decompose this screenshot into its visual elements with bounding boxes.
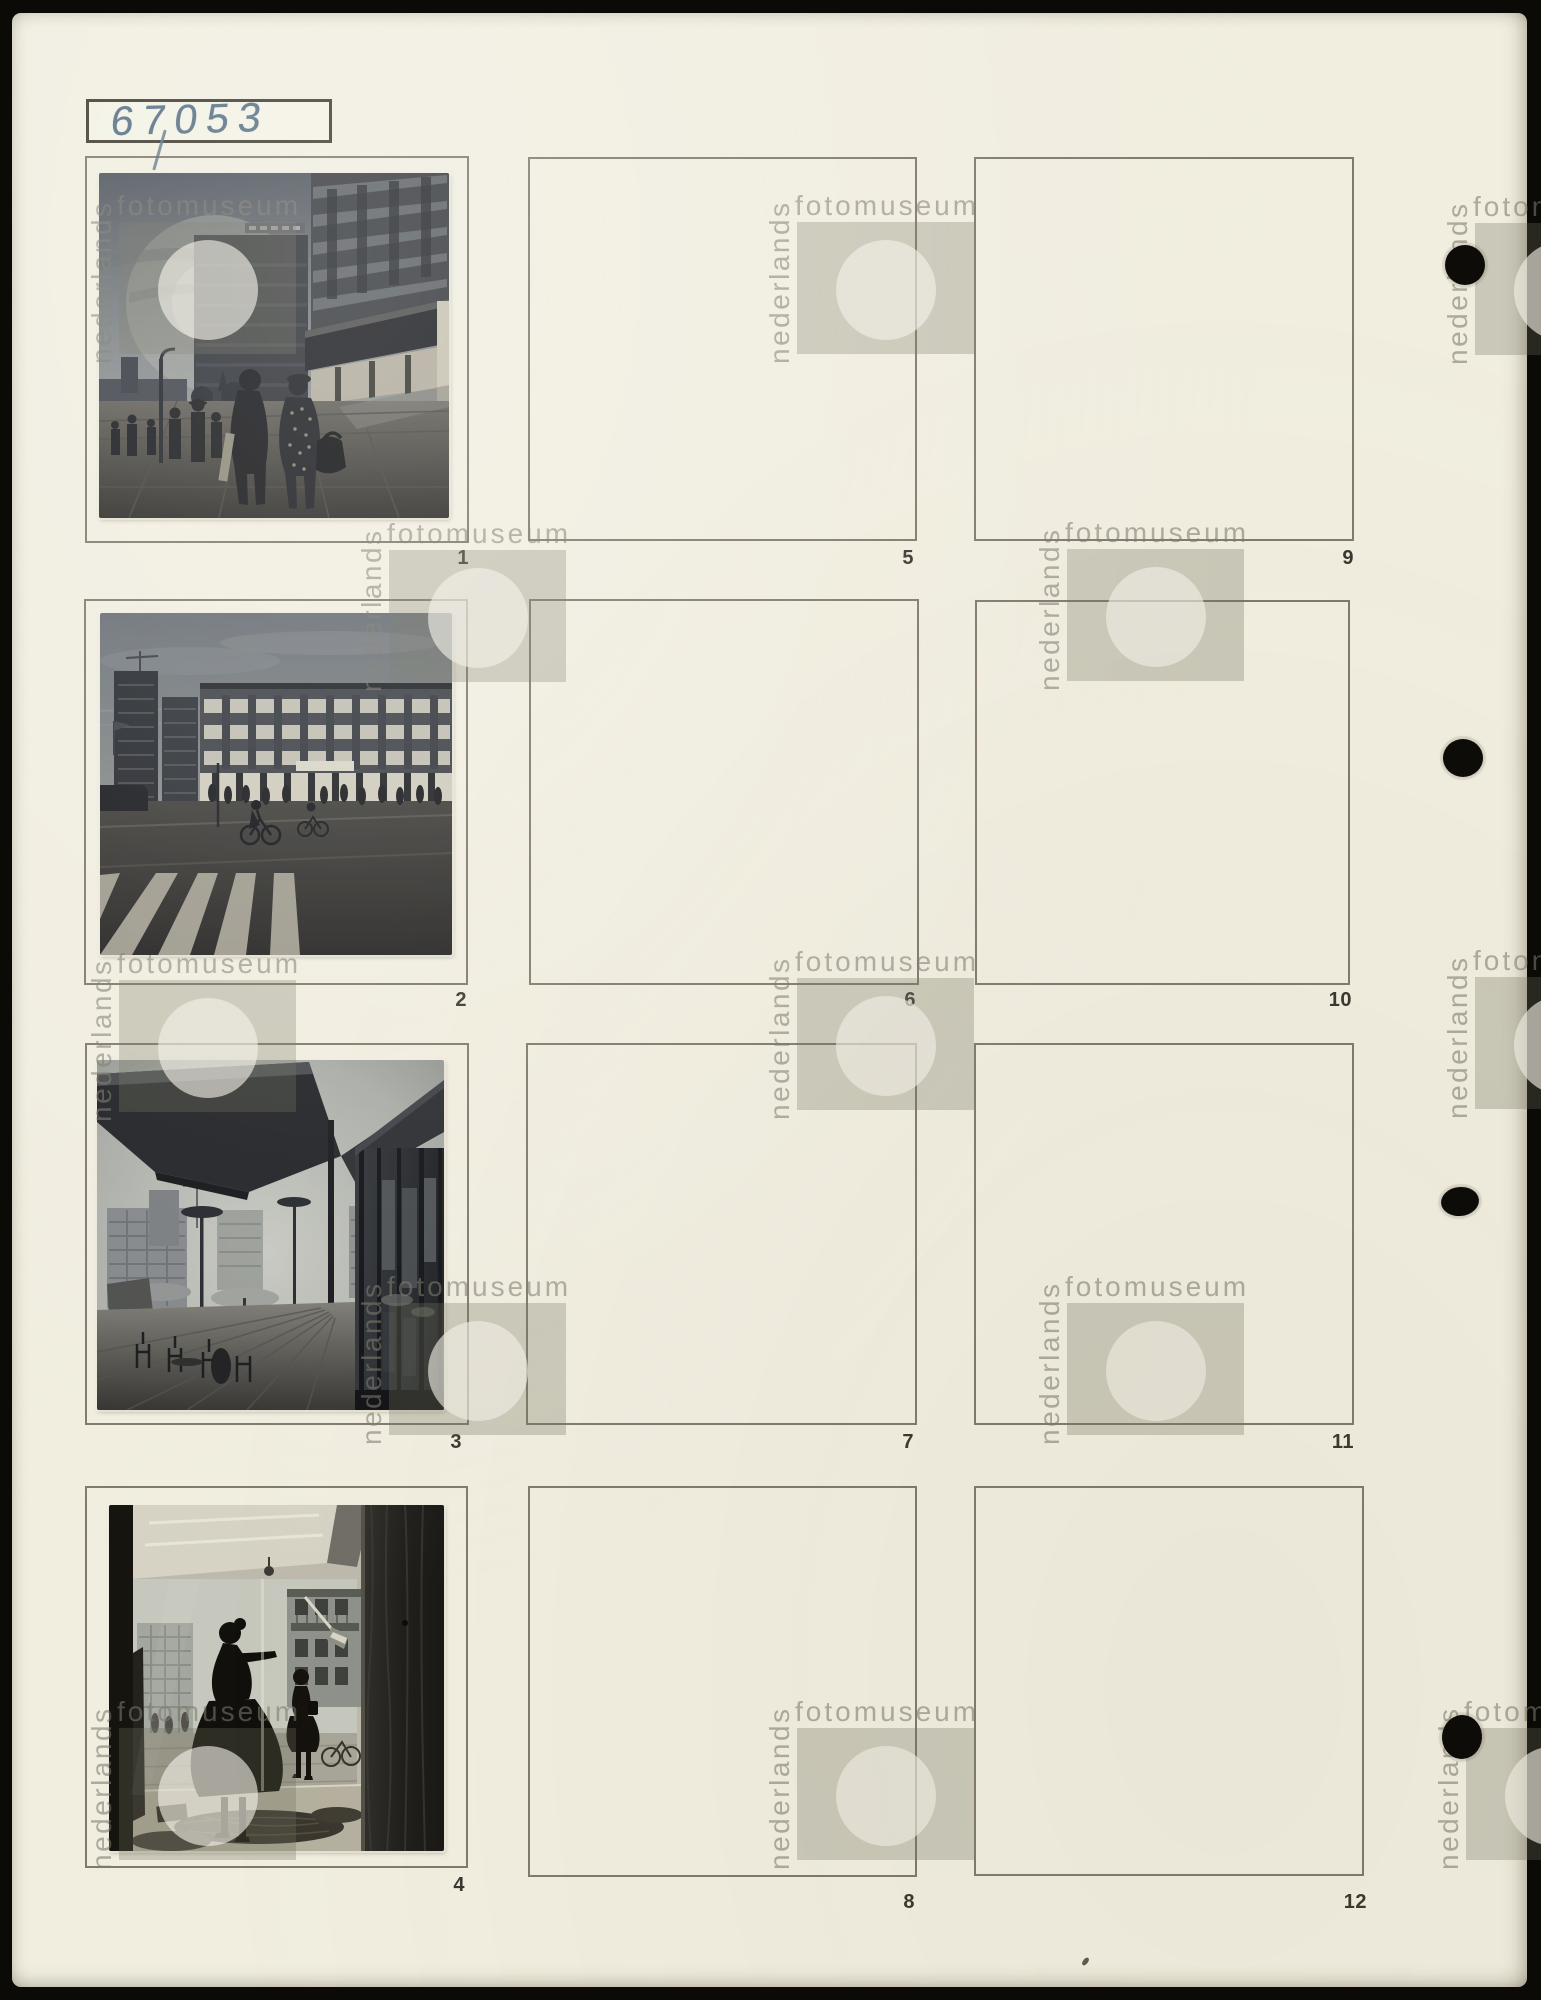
watermark-horizontal-text: fotomuseum [1473,947,1541,975]
photo-frame-7 [526,1043,917,1425]
ink-speck [1081,1956,1090,1966]
frame-number-9: 9 [1312,547,1354,570]
frame-number-5: 5 [872,547,914,570]
watermark-logo-box [1475,223,1541,355]
photo-frame-6 [529,599,919,985]
watermark-tile: nederlands fotomuseum [1444,951,1541,1119]
photo-1 [99,173,449,518]
photo-frame-12 [974,1486,1364,1876]
frame-number-4: 4 [423,1874,465,1897]
frame-number-6: 6 [874,989,916,1012]
photo-frame-5 [528,157,917,541]
album-page: 67053 1 2 3 4 5 6 7 8 9 10 11 12 [12,13,1527,1987]
photo-3-image [97,1060,444,1410]
photo-4 [109,1505,444,1851]
photo-frame-11 [974,1043,1354,1425]
watermark-logo-box [1475,977,1541,1109]
watermark-logo-circle [1514,241,1541,341]
archive-number-text: 67053 [108,94,272,145]
watermark-horizontal-text: fotomuseum [1473,193,1541,221]
photo-frame-8 [528,1486,917,1877]
photo-frame-9 [974,157,1354,541]
frame-number-10: 10 [1310,989,1352,1012]
watermark-logo-circle [1514,995,1541,1095]
photo-2 [100,613,452,955]
frame-number-8: 8 [873,1891,915,1914]
watermark-vertical-text: nederlands [1443,953,1472,1119]
frame-number-3: 3 [420,1431,462,1454]
archive-number-box: 67053 [86,99,332,143]
photo-4-image [109,1505,444,1851]
frame-number-1: 1 [427,547,469,570]
photo-1-image [99,173,449,518]
photo-3 [97,1060,444,1410]
frame-number-7: 7 [872,1431,914,1454]
scan-background: 67053 1 2 3 4 5 6 7 8 9 10 11 12 [0,0,1541,2000]
photo-frame-10 [975,600,1350,985]
punch-hole [1443,739,1483,777]
punch-hole [1445,245,1485,285]
photo-2-image [100,613,452,955]
frame-number-11: 11 [1312,1431,1354,1454]
frame-number-2: 2 [425,989,467,1012]
frame-number-12: 12 [1325,1891,1367,1914]
watermark-logo-circle [1505,1746,1541,1846]
